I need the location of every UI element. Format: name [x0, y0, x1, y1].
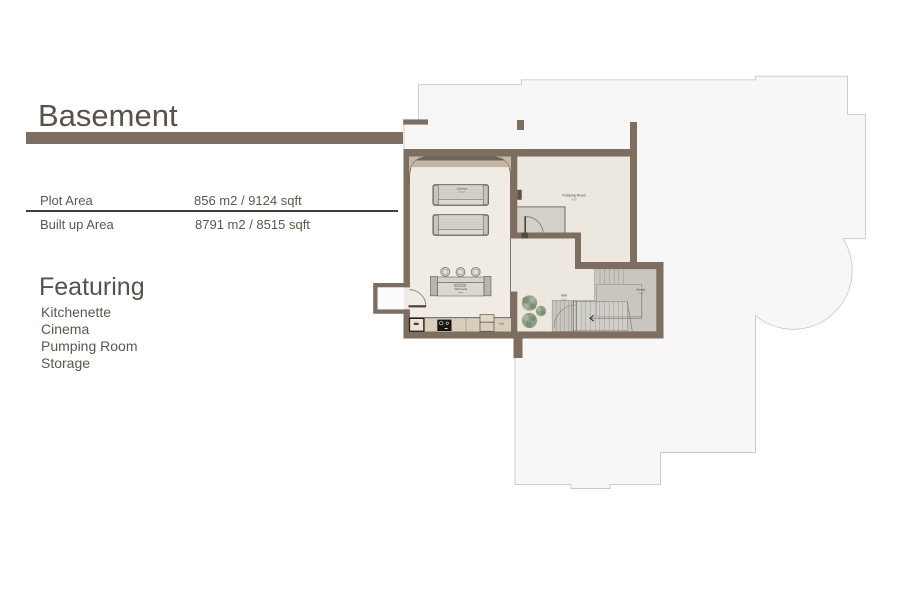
svg-text:9 m2: 9 m2	[571, 198, 577, 201]
svg-text:30 m2: 30 m2	[459, 192, 466, 194]
svg-text:5 m2: 5 m2	[561, 298, 567, 301]
svg-text:Cinema: Cinema	[457, 186, 468, 190]
svg-text:Hall: Hall	[561, 294, 567, 298]
svg-text:Kitchenette: Kitchenette	[454, 287, 468, 291]
svg-text:4 m2: 4 m2	[638, 293, 644, 295]
svg-text:sink: sink	[499, 321, 504, 325]
svg-text:Storage: Storage	[636, 287, 646, 291]
svg-text:Pumping Room: Pumping Room	[562, 193, 586, 197]
